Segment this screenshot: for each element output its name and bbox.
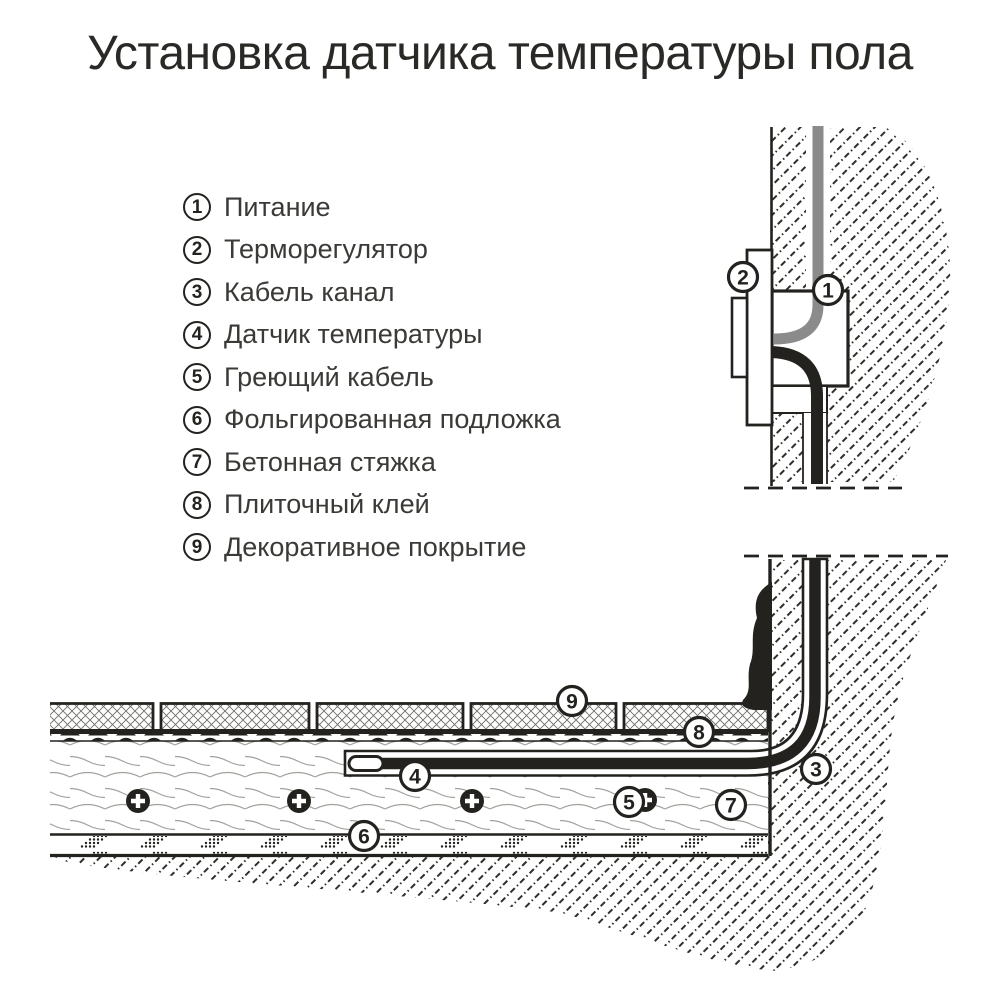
tile [471,704,616,732]
callout-8-number: 8 [693,722,705,745]
foil-underlay-layer [50,835,768,856]
corner-sealant-blob [742,582,772,710]
callout-2-number: 2 [737,267,749,290]
floor-layers [50,559,827,856]
callout-3-number: 3 [810,759,822,782]
tile-layer [50,704,768,732]
thermostat-front [732,298,747,377]
callout-9-number: 9 [566,691,578,714]
callout-8-tile-adhesive: 8 [685,718,714,747]
callout-4-temperature-sensor: 4 [401,762,430,791]
callout-7-concrete-screed: 7 [717,791,746,820]
adhesive-band [50,729,768,734]
callout-7-number: 7 [725,795,737,818]
page: Установка датчика температуры пола 1 Пит… [0,0,1000,1000]
callout-6-foil-underlay: 6 [350,822,379,851]
foil-dots [50,836,768,854]
tile [161,704,309,732]
temperature-sensor-head [349,757,383,771]
callout-2-thermostat: 2 [729,263,758,292]
heating-cable-section [287,789,311,813]
installation-cross-section: 1 2 3 4 5 6 7 [0,0,1000,1000]
tile [50,704,153,732]
callout-6-number: 6 [358,826,370,849]
callout-1-number: 1 [822,280,834,303]
callout-4-number: 4 [409,766,421,789]
adhesive-layer [50,729,768,742]
heating-cable-section [460,789,484,813]
heating-cable-section [126,789,150,813]
tile [317,704,463,732]
callout-3-cable-channel: 3 [802,755,831,784]
callout-9-decorative-cover: 9 [558,687,587,716]
callout-5-heating-cable: 5 [615,788,644,817]
upper-wall-section [732,126,950,488]
callout-1-power: 1 [814,276,843,305]
callout-5-number: 5 [623,792,635,815]
